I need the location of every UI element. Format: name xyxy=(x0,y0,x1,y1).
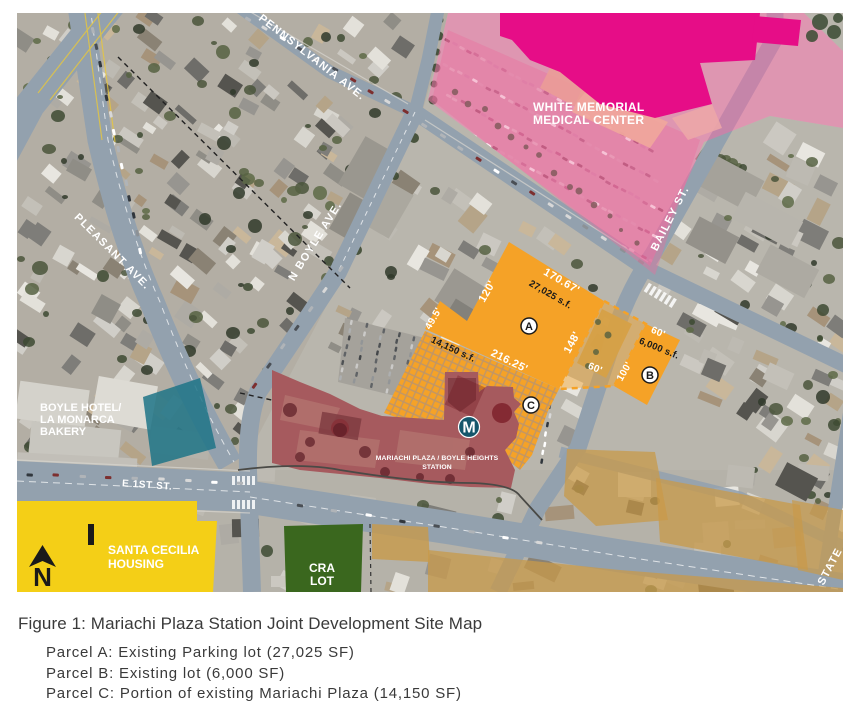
svg-text:MEDICAL CENTER: MEDICAL CENTER xyxy=(533,113,644,127)
svg-text:HOUSING: HOUSING xyxy=(108,557,164,571)
svg-text:SANTA CECILIA: SANTA CECILIA xyxy=(108,543,200,557)
svg-text:M: M xyxy=(462,420,475,437)
svg-text:STATION: STATION xyxy=(422,464,452,471)
svg-text:A: A xyxy=(525,321,533,333)
svg-text:MARIACHI PLAZA / BOYLE HEIGHTS: MARIACHI PLAZA / BOYLE HEIGHTS xyxy=(376,455,499,462)
svg-text:BOYLE HOTEL/: BOYLE HOTEL/ xyxy=(40,402,121,414)
svg-text:WHITE MEMORIAL: WHITE MEMORIAL xyxy=(533,100,645,114)
svg-text:CRA: CRA xyxy=(309,561,335,575)
svg-text:LA MONARCA: LA MONARCA xyxy=(40,414,115,426)
svg-text:N: N xyxy=(33,562,52,592)
svg-text:BAKERY: BAKERY xyxy=(40,426,87,438)
svg-text:C: C xyxy=(527,400,535,412)
svg-text:B: B xyxy=(646,370,654,382)
svg-text:LOT: LOT xyxy=(310,574,335,588)
